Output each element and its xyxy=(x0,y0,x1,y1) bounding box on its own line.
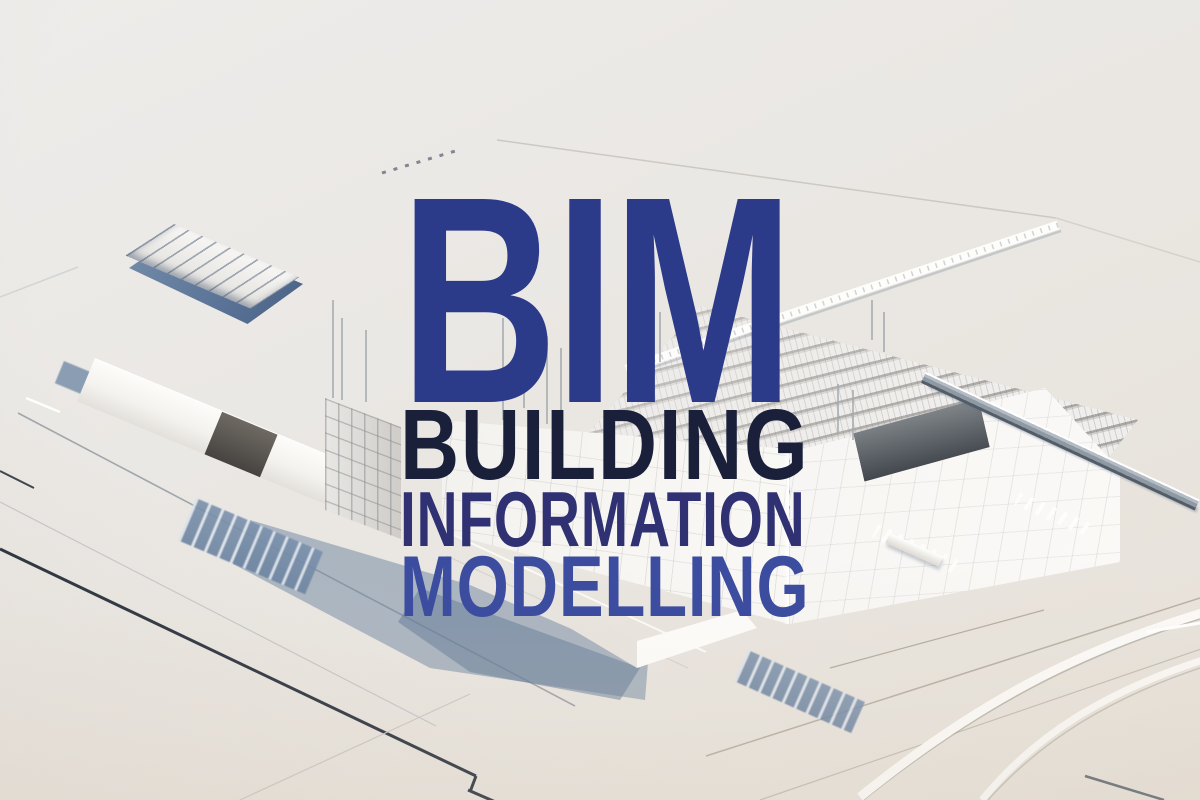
title-word-modelling: MODELLING xyxy=(400,544,809,630)
bim-hero-image: BIM BUILDING INFORMATION MODELLING xyxy=(0,0,1200,800)
top-left-faint-edge xyxy=(0,267,78,297)
plateau-edge-right xyxy=(1056,218,1200,262)
